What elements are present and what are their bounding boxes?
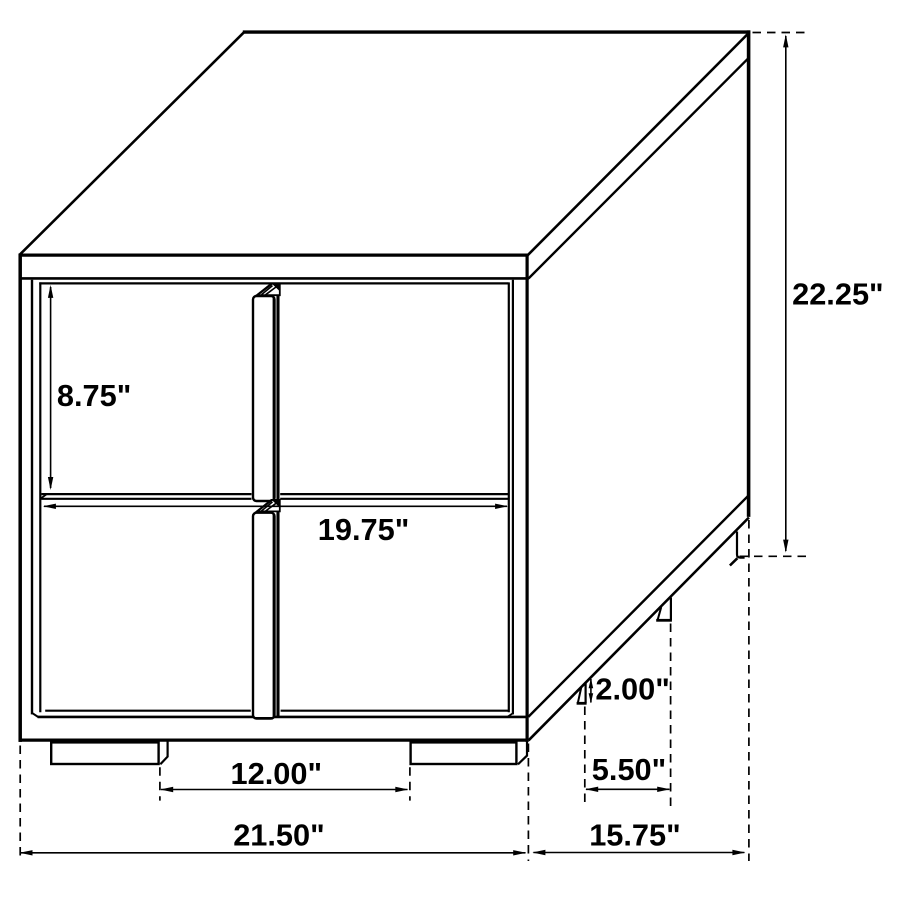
svg-text:21.50": 21.50"	[233, 818, 325, 853]
svg-text:19.75": 19.75"	[318, 512, 410, 547]
svg-text:15.75": 15.75"	[589, 817, 681, 852]
svg-text:12.00": 12.00"	[231, 756, 323, 791]
svg-text:5.50": 5.50"	[592, 752, 666, 787]
svg-text:8.75": 8.75"	[57, 378, 131, 413]
svg-text:22.25": 22.25"	[792, 277, 884, 312]
svg-text:2.00": 2.00"	[595, 672, 669, 707]
